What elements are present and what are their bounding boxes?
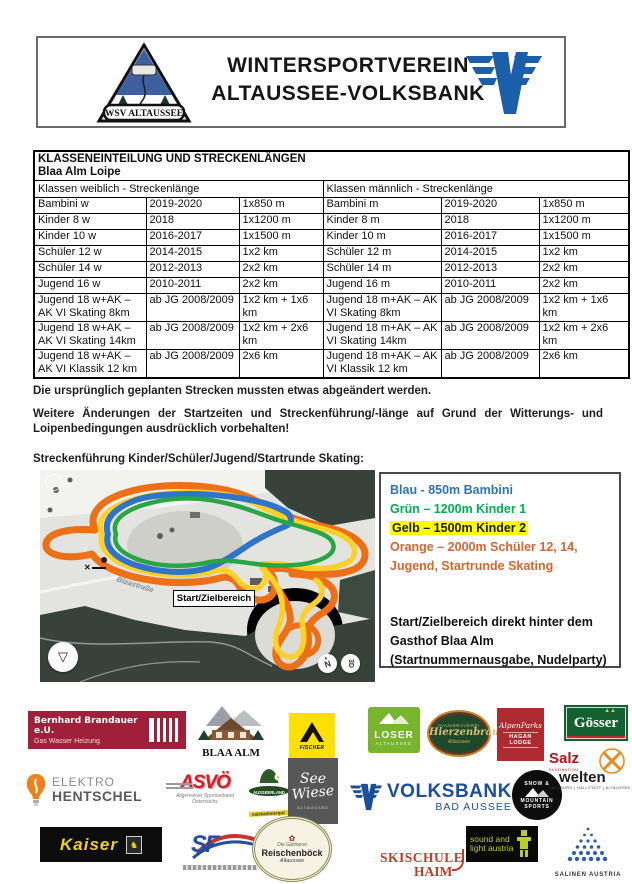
mountain-icon — [377, 711, 411, 725]
table-row: Kinder 10 w2016-20171x1500 m Kinder 10 m… — [34, 230, 629, 246]
map-collapse-button[interactable]: ▽ — [48, 642, 78, 672]
sponsor-sf: SF — [177, 831, 263, 875]
document-page: WSV ALTAUSSEE WINTERSPORTVEREIN ALTAUSSE… — [0, 0, 632, 884]
group-header-weiblich: Klassen weiblich - Streckenlänge — [34, 181, 323, 198]
sponsor-brandauer: Bernhard Brandauer e.U. Gas Wasser Heizu… — [28, 711, 186, 749]
note-vorbehalt: Weitere Änderungen der Startzeiten und S… — [33, 407, 603, 437]
legend-note: Start/Zielbereich direkt hinter dem Gast… — [390, 613, 610, 670]
sponsor-elektro-hentschel: ELEKTRO HENTSCHEL — [25, 767, 163, 813]
svg-text:AUSSEERLAND: AUSSEERLAND — [253, 790, 285, 795]
map-compass-ghost — [45, 474, 62, 491]
wsv-banner-text: WSV ALTAUSSEE — [105, 109, 183, 119]
sponsor-blaa-alm: BLAA ALM — [196, 704, 266, 756]
lodge-illustration-icon — [196, 704, 266, 742]
crossed-hammers-icon — [599, 748, 625, 774]
styrian-hat-icon: AUSSEERLAND — [247, 765, 291, 797]
mountain-icon — [524, 787, 550, 798]
sponsor-volksbank-bad-aussee: VOLKSBANK BAD AUSSEE — [349, 776, 514, 818]
legend-item-gruen: Grün – 1200m Kinder 1 — [390, 500, 610, 519]
radiator-icon — [149, 718, 180, 742]
volksbank-v-icon — [349, 781, 383, 813]
sponsor-sound-and-light-austria: sound and light austria — [466, 826, 538, 862]
sponsor-goesser: ▲▲ Gösser — [564, 705, 628, 741]
course-map: Blaastraße ✕ Start/Zielbereich ▽ ▲N 3D — [40, 470, 375, 682]
crest-icon: ♞ — [126, 836, 142, 854]
club-title: WINTERSPORTVEREIN ALTAUSSEE-VOLKSBANK — [198, 52, 498, 108]
table-title: KLASSENEINTEILUNG UND STRECKENLÄNGEN Bla… — [34, 151, 629, 181]
dotted-triangle-icon — [560, 826, 616, 866]
sponsor-reischenboeck: ✿ Die Gärtnerei Reischenböck Altaussee — [252, 816, 332, 882]
group-header-maennlich: Klassen männlich - Streckenlänge — [323, 181, 629, 198]
flower-icon: ✿ — [255, 835, 329, 842]
sponsor-salinen-austria: SALINEN AUSTRIA — [546, 826, 630, 880]
lightbulb-icon — [25, 773, 47, 807]
sponsor-skischule-haim: SKISCHULE HAIM — [380, 851, 468, 884]
map-x-marker: ✕ — [84, 563, 106, 572]
table-row: Schüler 14 w2012-20132x2 km Schüler 14 m… — [34, 262, 629, 278]
club-header-banner: WSV ALTAUSSEE WINTERSPORTVEREIN ALTAUSSE… — [36, 36, 566, 128]
note-strecken-geaendert: Die ursprünglich geplanten Strecken muss… — [33, 384, 603, 399]
table-row: Jugend 18 w+AK – AK VI Klassik 12 kmab J… — [34, 350, 629, 378]
illegible-caption — [183, 865, 257, 870]
legend-item-gelb: Gelb – 1500m Kinder 2 — [390, 519, 610, 538]
sponsor-seewiese: See Wiese ALTAUSSEE — [288, 758, 338, 824]
course-legend: Blau - 850m Bambini Grün – 1200m Kinder … — [379, 472, 621, 668]
legend-item-orange: Orange – 2000m Schüler 12, 14, Jugend, S… — [390, 538, 610, 576]
table-row: Jugend 16 w2010-20112x2 km Jugend 16 m20… — [34, 278, 629, 294]
crown-icon: ▲▲ — [604, 708, 616, 714]
sponsor-loser: LOSER ALTAUSSEE — [368, 707, 420, 753]
sponsor-hierzenbrau: HAUSBRAUEREI Hierzenbrau Altaussee — [427, 710, 491, 757]
wsv-altaussee-logo: WSV ALTAUSSEE — [96, 43, 192, 125]
table-row: Jugend 18 w+AK – AK VI Skating 8kmab JG … — [34, 294, 629, 322]
note-streckenfuehrung: Streckenführung Kinder/Schüler/Jugend/St… — [33, 452, 603, 467]
table-row: Jugend 18 w+AK – AK VI Skating 14kmab JG… — [34, 322, 629, 350]
legend-item-blau: Blau - 850m Bambini — [390, 481, 610, 500]
sponsor-asvo: ASVÖ Allgemeiner Sportverband Österreich… — [163, 773, 247, 815]
table-row: Kinder 8 w20181x1200 m Kinder 8 m20181x1… — [34, 214, 629, 230]
sponsor-ausseerland: AUSSEERLAND salzkammergut — [245, 765, 292, 813]
volksbank-v-icon — [464, 48, 544, 118]
sponsor-hagan-lodge: AlpenParks HAGAN LODGE — [497, 708, 544, 761]
map-satellite-image — [40, 470, 375, 682]
map-3d-button[interactable]: 3D — [341, 654, 360, 673]
start-ziel-label: Start/Zielbereich — [173, 590, 255, 607]
pixel-person-icon — [516, 830, 532, 858]
speed-lines-icon — [166, 781, 192, 789]
table-row: Bambini w2019-20201x850 m Bambini m2019-… — [34, 198, 629, 214]
sponsor-salzwelten: Salz FASZINATION welten SALZBURG | HALLS… — [549, 750, 631, 800]
fischer-triangle-icon — [299, 721, 325, 743]
klasseneinteilung-table: KLASSENEINTEILUNG UND STRECKENLÄNGEN Bla… — [33, 150, 630, 379]
sponsor-kaiser: Kaiser ♞ — [40, 827, 162, 862]
table-row: Schüler 12 w2014-20151x2 km Schüler 12 m… — [34, 246, 629, 262]
wave-swoosh-icon — [177, 831, 263, 861]
sponsor-fischer: FISCHER — [289, 713, 335, 759]
